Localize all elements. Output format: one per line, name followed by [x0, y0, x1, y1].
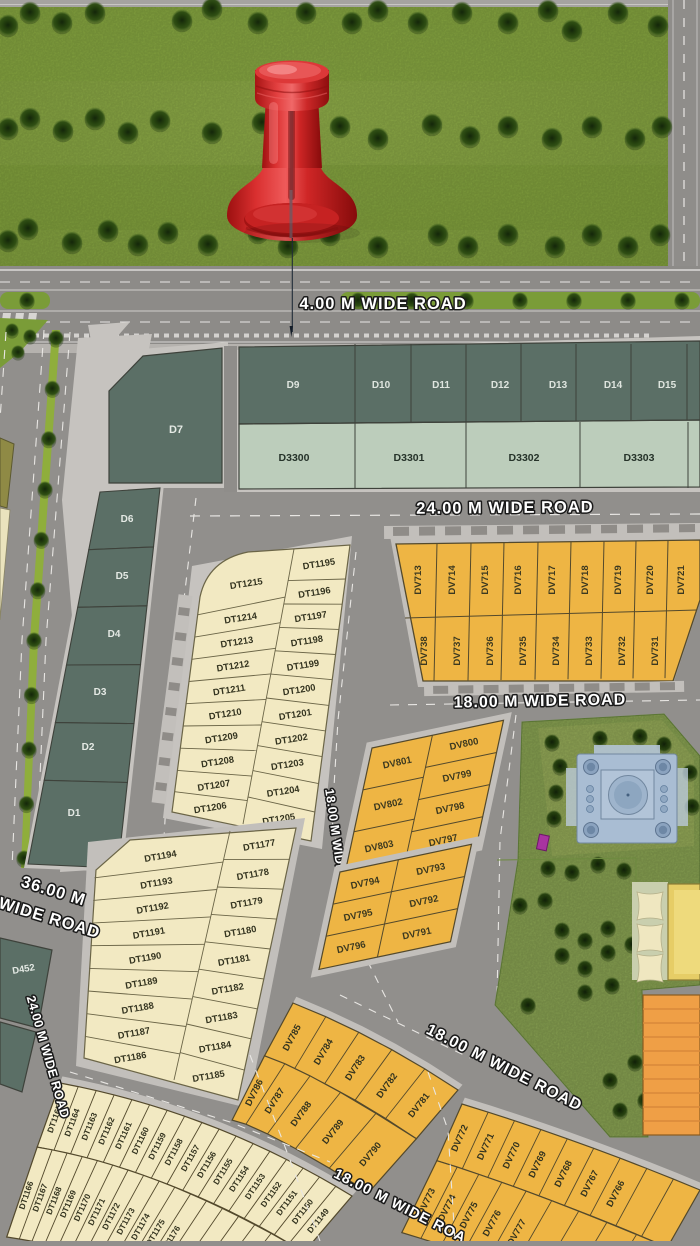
- svg-text:D7: D7: [169, 424, 183, 436]
- svg-text:DV737: DV737: [452, 636, 463, 665]
- svg-text:D6: D6: [121, 514, 134, 525]
- svg-text:DV713: DV713: [413, 565, 424, 594]
- svg-text:D3301: D3301: [394, 452, 425, 464]
- svg-text:DV738: DV738: [419, 636, 430, 666]
- svg-text:DV731: DV731: [650, 636, 661, 666]
- svg-text:D2: D2: [82, 742, 95, 753]
- svg-text:DV718: DV718: [580, 565, 591, 595]
- svg-text:D11: D11: [432, 380, 450, 391]
- svg-text:DV716: DV716: [513, 565, 524, 594]
- svg-text:24.00 M WIDE ROAD: 24.00 M WIDE ROAD: [416, 498, 594, 518]
- svg-text:DV714: DV714: [447, 565, 458, 595]
- svg-text:DV733: DV733: [584, 636, 595, 665]
- svg-text:D9: D9: [287, 380, 300, 391]
- svg-text:DV735: DV735: [518, 636, 529, 666]
- svg-text:D14: D14: [604, 380, 623, 391]
- svg-text:18.00 M WIDE ROAD: 18.00 M WIDE ROAD: [453, 691, 626, 711]
- svg-text:DV715: DV715: [480, 565, 491, 595]
- svg-text:DV734: DV734: [551, 636, 562, 666]
- svg-text:DV721: DV721: [676, 565, 687, 595]
- svg-text:D12: D12: [491, 380, 510, 391]
- svg-text:D3: D3: [94, 687, 107, 698]
- svg-text:D3300: D3300: [279, 452, 310, 464]
- svg-text:DV719: DV719: [613, 565, 624, 594]
- svg-text:D5: D5: [116, 571, 129, 582]
- svg-text:DV717: DV717: [547, 565, 558, 594]
- svg-text:D1: D1: [68, 808, 81, 819]
- svg-text:DV736: DV736: [485, 636, 496, 665]
- svg-text:D15: D15: [658, 380, 677, 391]
- svg-text:D3302: D3302: [509, 452, 540, 464]
- svg-text:4.00 M WIDE ROAD: 4.00 M WIDE ROAD: [299, 295, 466, 313]
- svg-text:D3303: D3303: [624, 452, 655, 464]
- svg-text:D4: D4: [108, 629, 121, 640]
- svg-text:D13: D13: [549, 380, 568, 391]
- svg-text:D10: D10: [372, 380, 391, 391]
- svg-text:DV720: DV720: [645, 565, 656, 594]
- svg-text:DV732: DV732: [617, 636, 628, 665]
